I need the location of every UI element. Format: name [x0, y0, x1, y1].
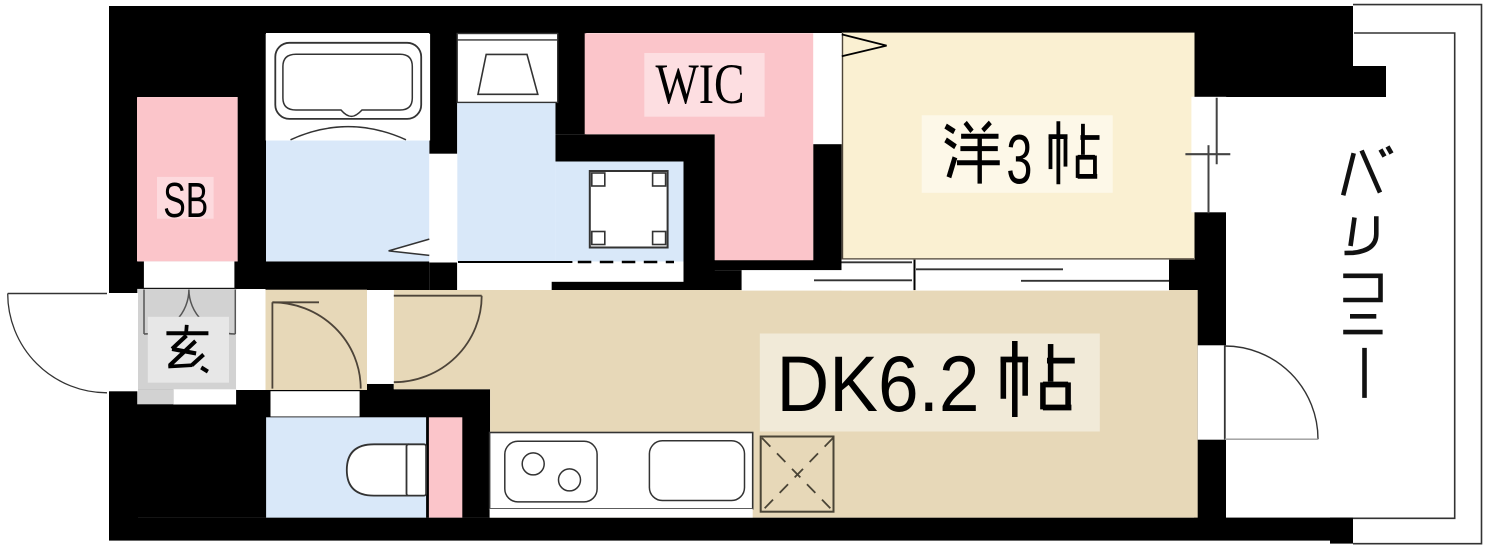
svg-text:3: 3: [1006, 120, 1032, 198]
svg-text:WIC: WIC: [656, 53, 745, 116]
svg-text:DK6.2: DK6.2: [777, 339, 980, 428]
svg-text:SB: SB: [163, 174, 208, 228]
